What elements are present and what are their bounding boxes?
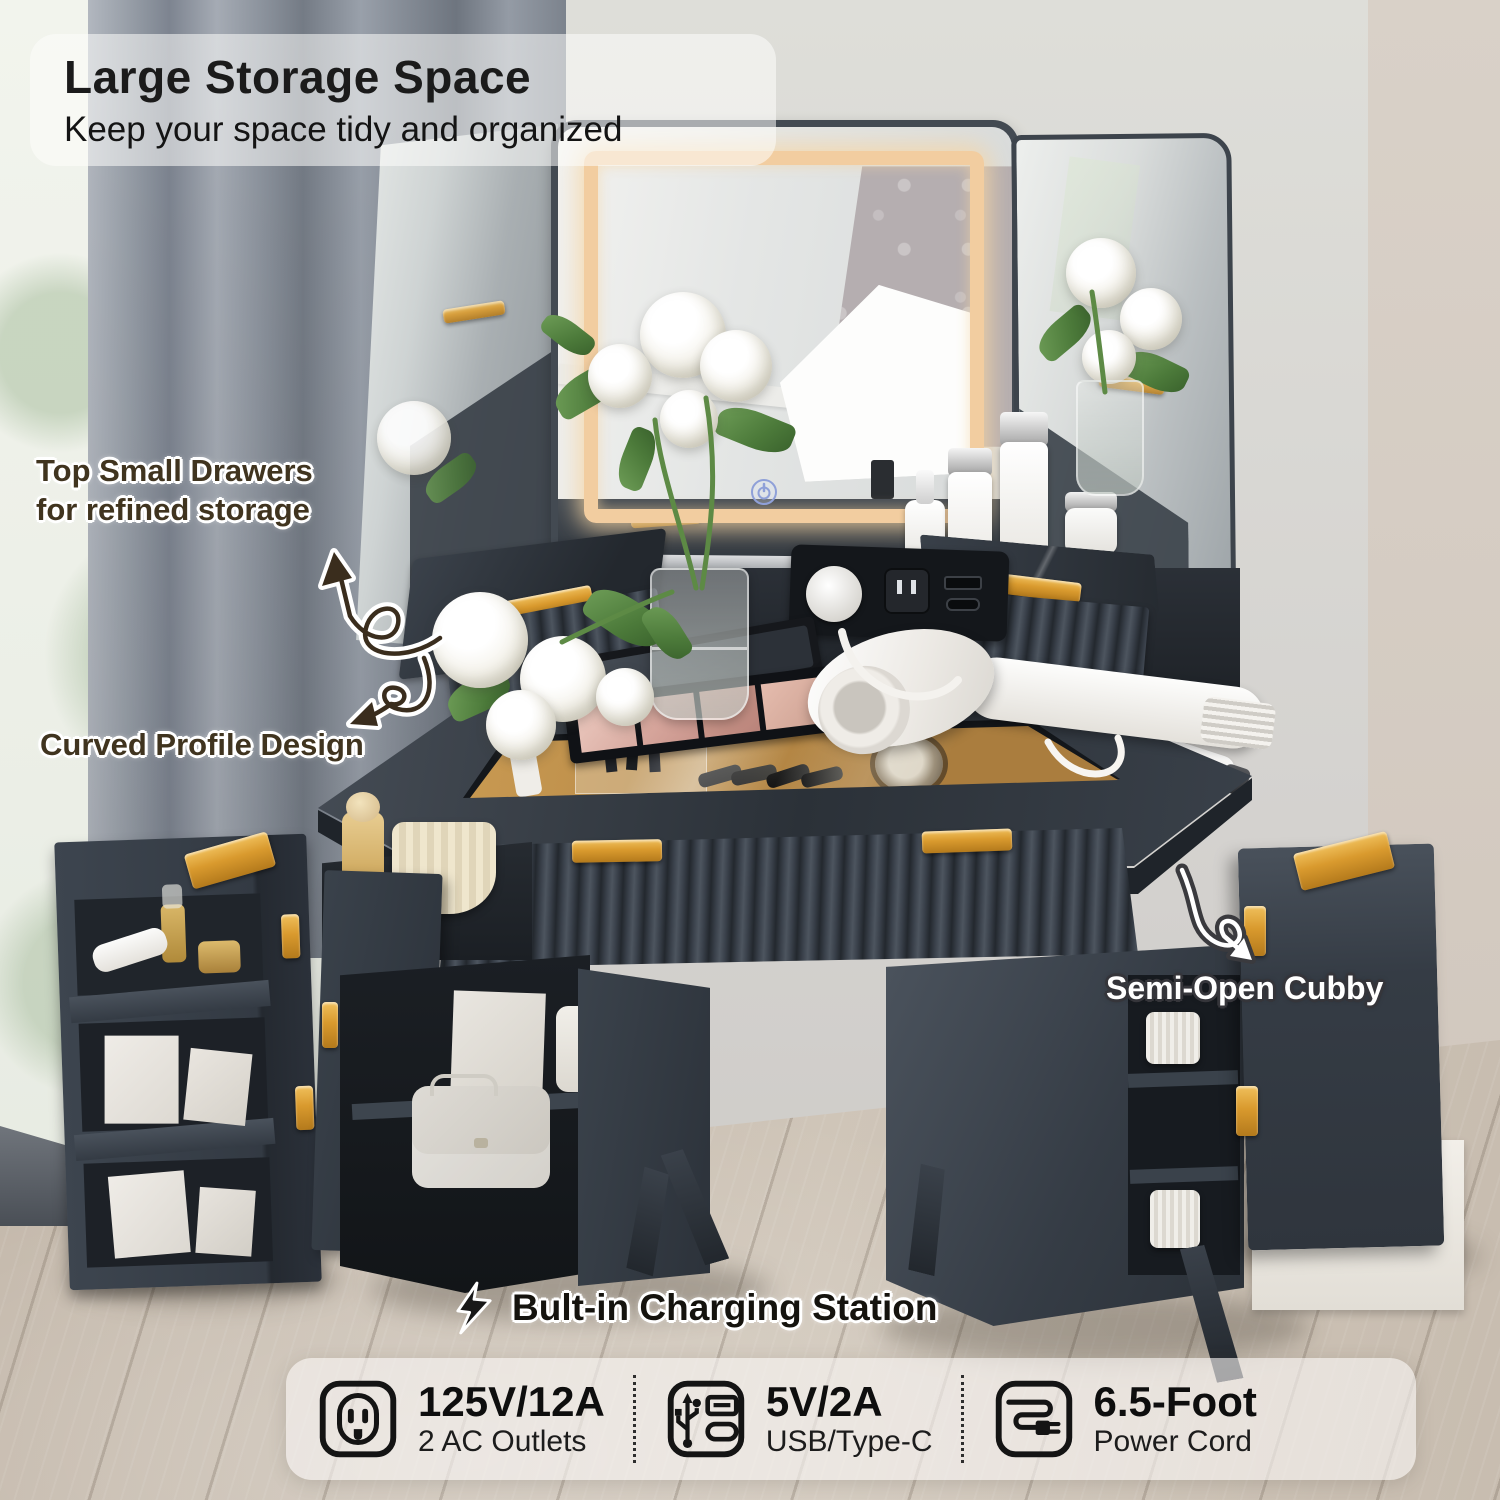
usb-type-c-icon — [664, 1377, 748, 1461]
spec-divider-1 — [633, 1375, 636, 1463]
spec-divider-2 — [961, 1375, 964, 1463]
hair-dryer-vents — [1199, 696, 1276, 750]
callout-curved-profile: Curved Profile Design — [40, 726, 364, 765]
right-flower-vase — [1076, 380, 1144, 496]
white-box-2 — [183, 1048, 252, 1126]
callout-top-drawers-line1: Top Small Drawers — [36, 452, 313, 491]
product-image-vanity-desk: Large Storage Space Keep your space tidy… — [0, 0, 1500, 1500]
page-subtitle: Keep your space tidy and organized — [64, 110, 622, 150]
bouquet-bloom-3 — [588, 344, 652, 408]
callout-top-drawers-line2: for refined storage — [36, 491, 313, 530]
white-box-3 — [108, 1170, 191, 1258]
spec-bar: 125V/12A 2 AC Outlets — [286, 1358, 1416, 1480]
right-cabinet-door — [1238, 844, 1444, 1251]
spec-label: USB/Type-C — [766, 1425, 933, 1459]
handbag-clasp — [474, 1138, 488, 1148]
bouquet-lower-bloom-4 — [596, 668, 654, 726]
left-unit-handle — [184, 831, 277, 889]
outlet-slot-right — [911, 580, 916, 594]
spec-ac-outlets: 125V/12A 2 AC Outlets — [316, 1377, 605, 1461]
charging-station-heading-text: Bult-in Charging Station — [512, 1287, 937, 1329]
left-door-hinge — [322, 1002, 338, 1048]
front-drawer-handle-right — [922, 828, 1013, 853]
handbag-strap — [430, 1074, 498, 1096]
skincare-dropper-cap — [916, 470, 934, 504]
mirror-left-reflection-handle — [442, 300, 505, 324]
gold-bottle-cap — [162, 884, 183, 909]
bouquet-bloom-4 — [660, 390, 718, 448]
spec-label: Power Cord — [1094, 1425, 1257, 1459]
usb-port-c — [946, 598, 980, 611]
power-cord-icon — [992, 1377, 1076, 1461]
lightning-icon — [452, 1280, 496, 1336]
bouquet-lower-bloom-3 — [486, 690, 556, 760]
front-drawer-handle-left — [572, 839, 662, 863]
white-box-4 — [195, 1187, 255, 1257]
white-box-1 — [105, 1036, 179, 1124]
usb-port-a — [944, 576, 982, 590]
right-bouquet-bloom-3 — [1082, 330, 1136, 384]
spec-usb: 5V/2A USB/Type-C — [664, 1377, 933, 1461]
ac-outlet-icon — [316, 1377, 400, 1461]
mirror-touch-button — [749, 477, 779, 507]
spec-text: 125V/12A 2 AC Outlets — [418, 1379, 605, 1458]
spec-value: 125V/12A — [418, 1379, 605, 1424]
mirror-left-reflection-bloom — [377, 401, 451, 475]
right-bouquet-bloom-1 — [1066, 238, 1136, 308]
spec-value: 5V/2A — [766, 1379, 933, 1424]
gold-jar — [198, 940, 241, 973]
right-door-hinge-top — [1244, 906, 1266, 956]
left-unit-hinge-top — [281, 914, 301, 959]
power-icon — [749, 477, 779, 507]
cubby-cup-top — [1146, 1012, 1200, 1064]
right-door-hinge-bottom — [1236, 1086, 1258, 1136]
spec-text: 5V/2A USB/Type-C — [766, 1379, 933, 1458]
spec-power-cord: 6.5-Foot Power Cord — [992, 1377, 1257, 1461]
plug-in-outlet — [806, 566, 862, 622]
left-unit-hinge-bottom — [295, 1086, 315, 1131]
skincare-bottle-2-cap — [1000, 412, 1048, 446]
charging-station-heading: Bult-in Charging Station — [452, 1280, 937, 1336]
page-title: Large Storage Space — [64, 50, 531, 104]
bouquet-lower-bloom-1 — [432, 592, 528, 688]
bouquet-bloom-2 — [700, 330, 772, 402]
outlet-slot-left — [897, 580, 902, 594]
spec-value: 6.5-Foot — [1094, 1379, 1257, 1424]
callout-semi-open-cubby: Semi-Open Cubby — [1106, 968, 1383, 1008]
title-box: Large Storage Space Keep your space tidy… — [30, 34, 776, 166]
left-shelf-door-unit — [54, 834, 321, 1291]
quilted-handbag — [412, 1086, 550, 1188]
ac-outlet-socket — [884, 568, 930, 614]
cubby-cup-bottom — [1150, 1190, 1200, 1248]
callout-top-drawers: Top Small Drawers for refined storage — [36, 452, 313, 530]
spec-text: 6.5-Foot Power Cord — [1094, 1379, 1257, 1458]
front-drawer — [438, 826, 1138, 972]
spec-label: 2 AC Outlets — [418, 1425, 605, 1459]
brush-knob — [346, 792, 380, 822]
